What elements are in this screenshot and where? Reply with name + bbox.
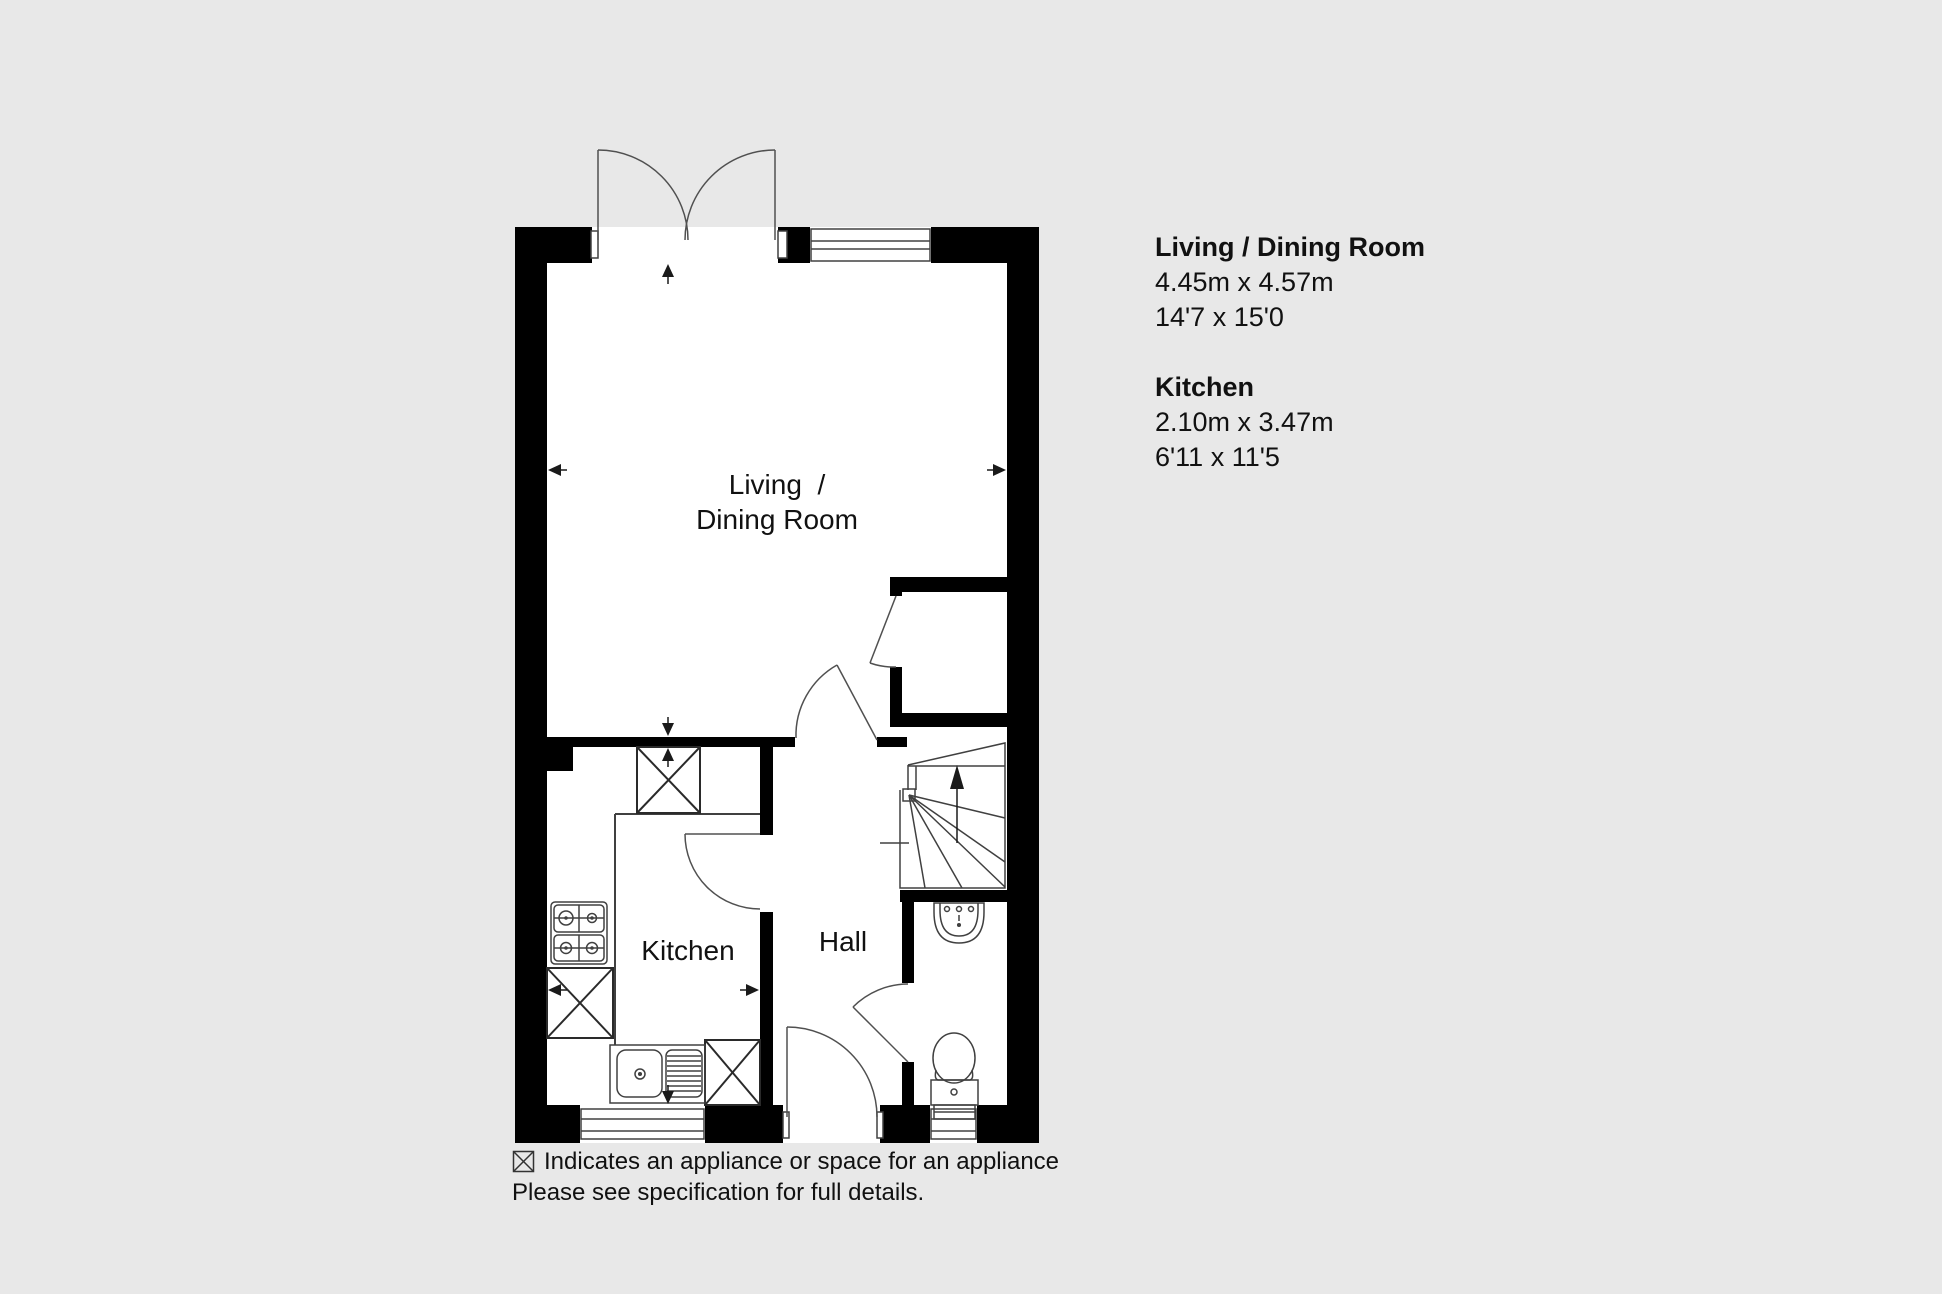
dimension-metric: 4.45m x 4.57m [1155,265,1425,300]
dimension-section-kitchen: Kitchen 2.10m x 3.47m 6'11 x 11'5 [1155,370,1425,475]
wall-hall-wc-lower [902,1062,914,1105]
appliance-legend: Indicates an appliance or space for an a… [512,1146,1059,1208]
wc-window-opening [930,1105,977,1143]
dimension-title: Kitchen [1155,370,1425,405]
front-door-frame-left [783,1112,789,1138]
kitchen-label: Kitchen [641,935,734,966]
kitchen-window-opening [580,1105,705,1143]
cupboard-door-stub-top [890,577,902,596]
dimension-title: Living / Dining Room [1155,230,1425,265]
dimension-section-living: Living / Dining Room 4.45m x 4.57m 14'7 … [1155,230,1425,335]
wall-living-kitchen [547,737,795,747]
kitchen-pier [547,747,573,771]
entrance-double-door [598,150,775,240]
living-dining-room-label-line2: Dining Room [696,504,858,535]
dimension-imperial: 6'11 x 11'5 [1155,440,1425,475]
wall-stairs-wc [900,890,1007,902]
legend-text-line2: Please see specification for full detail… [512,1177,1059,1208]
cupboard-door-stub-bottom [890,667,902,713]
wall-right [1007,227,1039,1143]
front-door-frame-right [877,1112,883,1138]
entrance-frame-right [778,231,787,258]
cupboard-wall-top [890,577,1007,592]
wall-kitchen-hall-upper [760,747,773,835]
dimension-metric: 2.10m x 3.47m [1155,405,1425,440]
wall-living-hall-stub [877,737,907,747]
hall-label: Hall [819,926,867,957]
wall-left [515,227,547,1143]
living-dining-room-label: Living / [729,469,826,500]
legend-text-line1: Indicates an appliance or space for an a… [544,1146,1059,1177]
front-door-opening [783,1105,880,1143]
living-window-opening [810,227,931,263]
floor-plan: Living / Dining Room Kitchen Hall [0,0,1942,1294]
dimension-imperial: 14'7 x 15'0 [1155,300,1425,335]
entrance-frame-left [591,231,598,258]
wall-hall-wc-upper [902,902,914,983]
appliance-space-right [705,1040,760,1105]
appliance-space-left [547,968,613,1038]
cupboard-wall-bottom [890,713,1007,727]
room-dimensions-panel: Living / Dining Room 4.45m x 4.57m 14'7 … [1155,230,1425,510]
wall-kitchen-hall-lower [760,912,773,1105]
appliance-box-icon [512,1150,535,1173]
